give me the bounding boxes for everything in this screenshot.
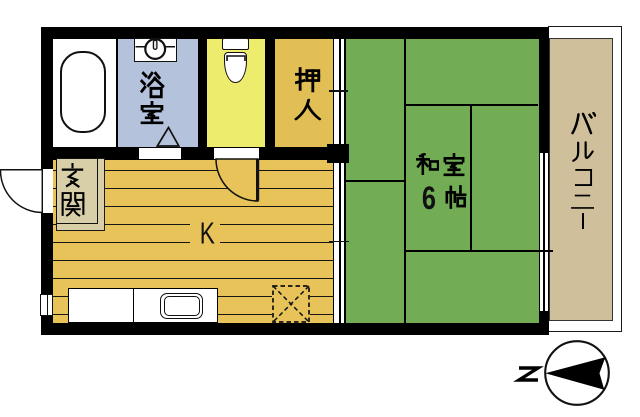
svg-text:6: 6 (422, 181, 436, 217)
svg-text:K: K (200, 216, 215, 250)
